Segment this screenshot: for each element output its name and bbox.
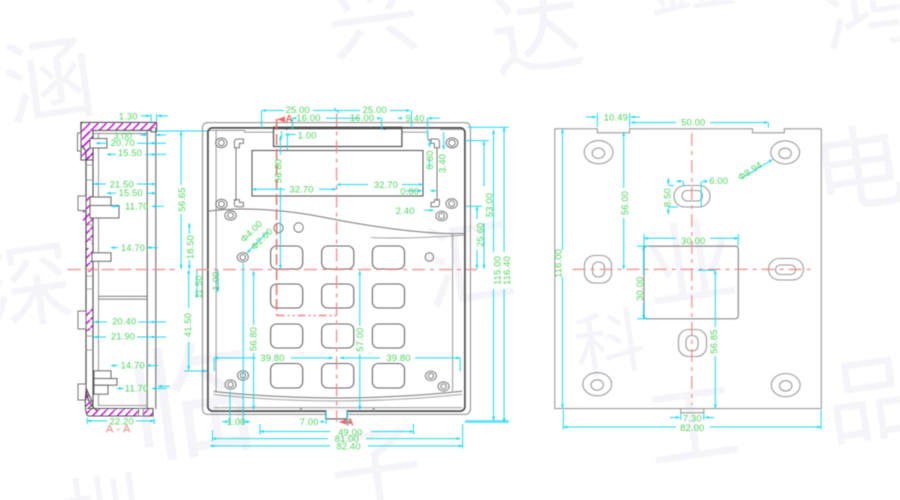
svg-text:116.00: 116.00 [553, 249, 563, 278]
svg-text:56.80: 56.80 [274, 159, 284, 183]
svg-text:10.49: 10.49 [604, 112, 628, 122]
svg-text:1.30: 1.30 [119, 112, 138, 122]
svg-text:6.00: 6.00 [709, 176, 728, 186]
svg-text:50.00: 50.00 [681, 118, 705, 128]
svg-text:53.00: 53.00 [484, 193, 494, 217]
svg-text:11.70: 11.70 [125, 201, 149, 211]
svg-text:1.00: 1.00 [298, 130, 317, 140]
svg-text:20.70: 20.70 [111, 138, 135, 148]
svg-text:8.50: 8.50 [663, 188, 673, 207]
svg-text:25.60: 25.60 [476, 223, 486, 247]
svg-text:56.65: 56.65 [177, 187, 187, 211]
svg-text:22.20: 22.20 [110, 417, 134, 427]
svg-text:鑫: 鑫 [637, 0, 742, 30]
svg-text:15.50: 15.50 [119, 188, 143, 198]
svg-text:30.00: 30.00 [635, 277, 645, 301]
svg-text:11.70: 11.70 [125, 384, 149, 394]
svg-text:39.80: 39.80 [260, 353, 284, 363]
svg-text:39.80: 39.80 [386, 353, 410, 363]
svg-text:0.80: 0.80 [425, 151, 435, 170]
svg-text:深: 深 [0, 231, 80, 345]
svg-text:18.50: 18.50 [186, 235, 196, 259]
svg-text:20.40: 20.40 [112, 317, 136, 327]
svg-text:1.00: 1.00 [227, 417, 246, 427]
svg-text:达: 达 [484, 0, 589, 92]
svg-text:115.00: 115.00 [492, 256, 502, 285]
svg-text:业: 业 [638, 209, 743, 323]
svg-text:16.00: 16.00 [350, 113, 374, 123]
svg-text:3.40: 3.40 [438, 154, 448, 173]
svg-text:57.00: 57.00 [355, 327, 365, 351]
svg-text:32.70: 32.70 [289, 185, 313, 195]
svg-text:鸿: 鸿 [814, 0, 900, 66]
svg-text:116.40: 116.40 [502, 256, 512, 285]
svg-text:82.00: 82.00 [680, 423, 704, 433]
svg-text:82.40: 82.40 [336, 442, 360, 452]
svg-text:21.90: 21.90 [111, 332, 135, 342]
svg-text:14.70: 14.70 [121, 361, 145, 371]
svg-text:56.80: 56.80 [249, 327, 259, 351]
svg-text:圳: 圳 [57, 464, 149, 500]
svg-text:9.40: 9.40 [406, 114, 425, 124]
svg-text:2.40: 2.40 [396, 206, 415, 216]
svg-text:7.00: 7.00 [300, 417, 319, 427]
svg-text:科: 科 [570, 301, 650, 388]
svg-text:30.00: 30.00 [681, 236, 705, 246]
svg-text:临: 临 [120, 327, 263, 482]
svg-text:32.70: 32.70 [374, 180, 398, 190]
svg-text:0.80: 0.80 [400, 186, 419, 196]
svg-text:15.50: 15.50 [118, 148, 142, 158]
svg-text:A: A [286, 114, 293, 125]
svg-text:56.00: 56.00 [620, 191, 630, 215]
svg-text:56.85: 56.85 [709, 329, 719, 353]
svg-text:品: 品 [819, 345, 900, 459]
svg-text:电: 电 [806, 114, 900, 228]
svg-text:14.70: 14.70 [121, 243, 145, 253]
svg-text:兴: 兴 [320, 0, 425, 74]
svg-text:Φ8.94: Φ8.94 [736, 160, 764, 183]
svg-text:16.00: 16.00 [296, 113, 320, 123]
svg-text:41.50: 41.50 [183, 313, 193, 337]
